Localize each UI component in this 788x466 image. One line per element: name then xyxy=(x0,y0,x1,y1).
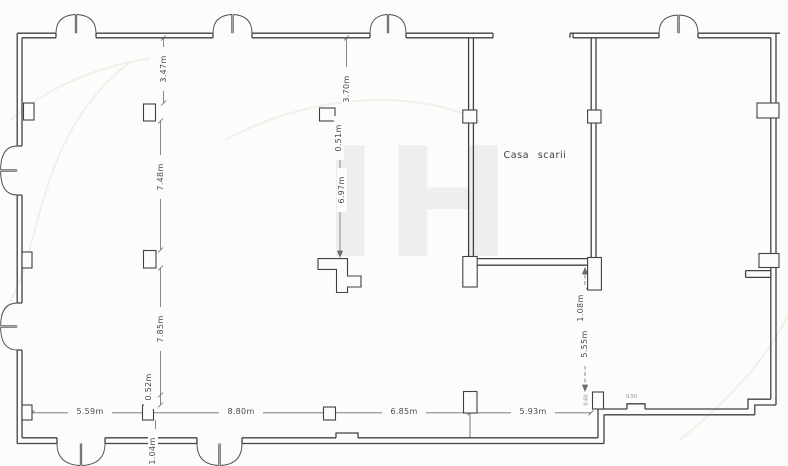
dim-label-7-48m: 7.48m xyxy=(156,155,166,199)
dim-label-6-97m: 6.97m xyxy=(337,168,347,212)
door-left-1 xyxy=(1,146,18,195)
dim-label-0-52m: 0.52m xyxy=(144,365,154,409)
dim-label-6-85m: 6.85m xyxy=(382,407,426,417)
floor-plan-drawing xyxy=(0,0,788,466)
dim-label-5-93m: 5.93m xyxy=(511,407,555,417)
floor-plan-page: IH xyxy=(0,0,788,466)
dim-label-5-55m: 5.55m xyxy=(580,322,590,366)
door-bottom-2 xyxy=(197,444,242,466)
dim-label-3-47m: 3.47m xyxy=(159,47,169,91)
tiny-label-0-50: 0.50 xyxy=(626,394,637,400)
columns xyxy=(22,103,779,420)
central-pier xyxy=(318,259,361,293)
door-left-2 xyxy=(1,303,18,350)
door-top-right-wing xyxy=(659,15,698,33)
dimension-lines xyxy=(30,36,594,466)
door-top-1 xyxy=(56,15,96,34)
door-bottom-1 xyxy=(57,444,105,466)
right-wing-walls xyxy=(570,33,780,415)
dim-label-3-70m: 3.70m xyxy=(342,67,352,111)
dim-label-1-04m: 1.04m xyxy=(148,429,158,466)
room-label-casa-scarii: Casa scarii xyxy=(500,150,570,161)
main-hall-walls xyxy=(17,33,604,443)
dim-label-5-59m: 5.59m xyxy=(68,407,112,417)
dim-label-8-80m: 8.80m xyxy=(219,407,263,417)
dim-label-0-51m: 0.51m xyxy=(334,116,344,160)
tiny-label-0-60: 0.60 xyxy=(584,394,590,405)
dim-label-7-85m: 7.85m xyxy=(156,307,166,351)
watermark-swoosh xyxy=(0,58,788,440)
door-top-3 xyxy=(370,15,406,34)
door-top-2 xyxy=(213,15,252,34)
